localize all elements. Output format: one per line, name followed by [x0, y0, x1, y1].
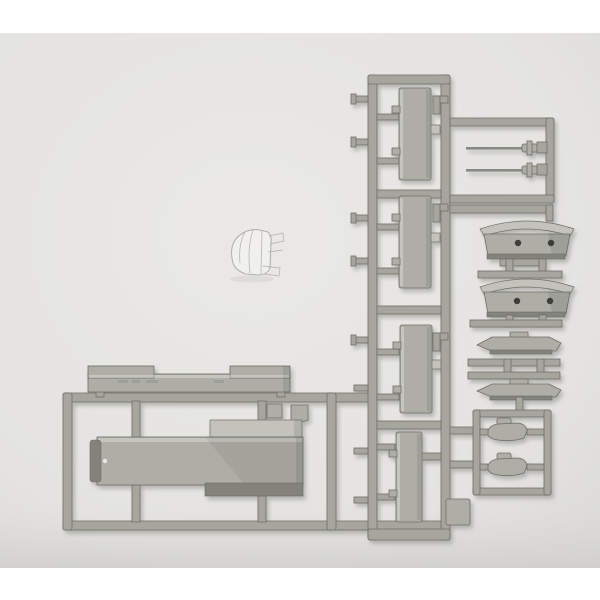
small-square-part — [446, 499, 470, 525]
frame-top-rail — [450, 118, 554, 126]
sprue-stub — [351, 213, 356, 223]
frame-left-rail — [473, 410, 480, 495]
ladder-rung — [377, 421, 441, 429]
frame-right-rail — [544, 410, 551, 495]
sprue-gate — [377, 394, 399, 400]
ships-boat-part-2 — [480, 279, 574, 317]
hull-step-part — [210, 420, 302, 437]
runner-bar — [450, 205, 552, 213]
part-lug — [392, 106, 400, 113]
frame-bottom-rail — [473, 488, 551, 495]
part-highlight — [397, 434, 400, 520]
sprue-stub — [354, 497, 368, 503]
part-lug — [393, 342, 401, 349]
frame-right-rail — [546, 118, 554, 203]
boat-keel-strip — [487, 312, 565, 317]
sprue-gate — [480, 464, 488, 470]
frame-left-rail — [63, 393, 72, 530]
part-shade — [417, 434, 421, 520]
frame-top-rail — [473, 410, 551, 417]
deck-embossing — [214, 380, 224, 383]
ladder-top-rung — [368, 75, 450, 84]
frame-bottom-rail — [450, 195, 554, 203]
hull-lower-strip — [205, 483, 303, 496]
sprue-gate — [377, 114, 399, 120]
thin-boat-body — [477, 337, 561, 351]
ejector-pin-mark — [103, 459, 107, 463]
sprue-gate — [433, 333, 440, 351]
deck-embossing — [132, 380, 140, 383]
boat-keel-strip — [487, 254, 565, 259]
locating-hole — [515, 240, 521, 246]
deck-end-shade — [283, 366, 290, 392]
runner-drop — [546, 205, 553, 221]
sprue-gate — [377, 224, 399, 230]
ladder-rung — [377, 306, 441, 314]
part-tab — [432, 360, 441, 369]
sprue-gate — [480, 429, 488, 435]
thin-boat-body — [477, 384, 561, 397]
deck-embossing — [146, 380, 158, 383]
sprue-gate — [258, 496, 266, 522]
runner-bar — [468, 372, 560, 379]
photo-canvas — [0, 0, 600, 600]
canopy-shadow — [230, 276, 274, 283]
fitting-body — [487, 458, 527, 476]
ladder-right-rail — [441, 75, 450, 540]
locating-hole — [514, 298, 520, 304]
part-lug — [392, 214, 400, 221]
sprue-gate — [537, 142, 547, 153]
sprue-gate — [450, 427, 473, 434]
sprue-stub — [354, 385, 368, 391]
sprue-gate — [420, 453, 441, 460]
part-lug — [392, 258, 400, 265]
sprue-gate — [132, 485, 140, 522]
needle-fin — [527, 141, 532, 155]
needle-shaft — [466, 147, 526, 150]
runner-bar — [470, 320, 562, 327]
needle-fin — [527, 163, 532, 177]
part-highlight — [400, 198, 403, 286]
hull-left-cap — [90, 440, 101, 482]
part-highlight — [400, 90, 403, 178]
sprue-stub — [354, 448, 368, 454]
sprue-gate — [537, 164, 547, 175]
sprue-gate — [258, 401, 266, 421]
photo-background-lower-shadow — [0, 508, 600, 568]
sprue-stub — [351, 137, 356, 147]
hull-step-shade — [294, 420, 302, 437]
sprue-gate — [450, 461, 473, 468]
part-tab — [431, 233, 440, 242]
small-fitting-part — [267, 404, 282, 418]
part-tab — [431, 125, 440, 134]
part-lug — [393, 386, 401, 393]
sprue-stub — [351, 94, 356, 104]
sprue-gate — [377, 158, 399, 164]
ladder-bottom-rung — [368, 529, 450, 540]
part-shade — [427, 327, 431, 411]
locating-hole — [547, 298, 553, 304]
frame-right-rail — [327, 393, 336, 530]
runner-joiner — [516, 397, 523, 411]
sprue-gate — [433, 204, 440, 222]
part-highlight — [401, 327, 404, 411]
ladder-left-rail — [368, 75, 377, 540]
thin-boat-keel — [490, 350, 552, 354]
locating-hole — [548, 240, 554, 246]
sprue-gate — [132, 401, 140, 439]
sprue-gate — [377, 349, 399, 355]
sprue-gate — [377, 268, 399, 274]
deck-highlight — [89, 375, 289, 378]
needle-shaft — [466, 169, 526, 172]
ships-boat-part-1 — [480, 221, 574, 259]
part-shade — [426, 90, 430, 178]
hull-right-shade — [296, 437, 303, 485]
runner-bar — [478, 271, 562, 278]
sprue-gate — [527, 429, 544, 435]
runner-bar — [468, 359, 560, 366]
sprue-gate — [527, 464, 544, 470]
sprue-stub — [351, 256, 356, 266]
product-photo — [0, 0, 600, 600]
sprue-stub — [351, 335, 356, 345]
sprue-gate — [377, 444, 395, 450]
sprue-gate — [433, 96, 440, 114]
deck-embossing — [118, 380, 128, 383]
part-lug — [389, 490, 397, 497]
fitting-body — [487, 423, 527, 441]
part-lug — [392, 148, 400, 155]
part-lug — [389, 450, 397, 457]
part-shade — [426, 198, 430, 286]
